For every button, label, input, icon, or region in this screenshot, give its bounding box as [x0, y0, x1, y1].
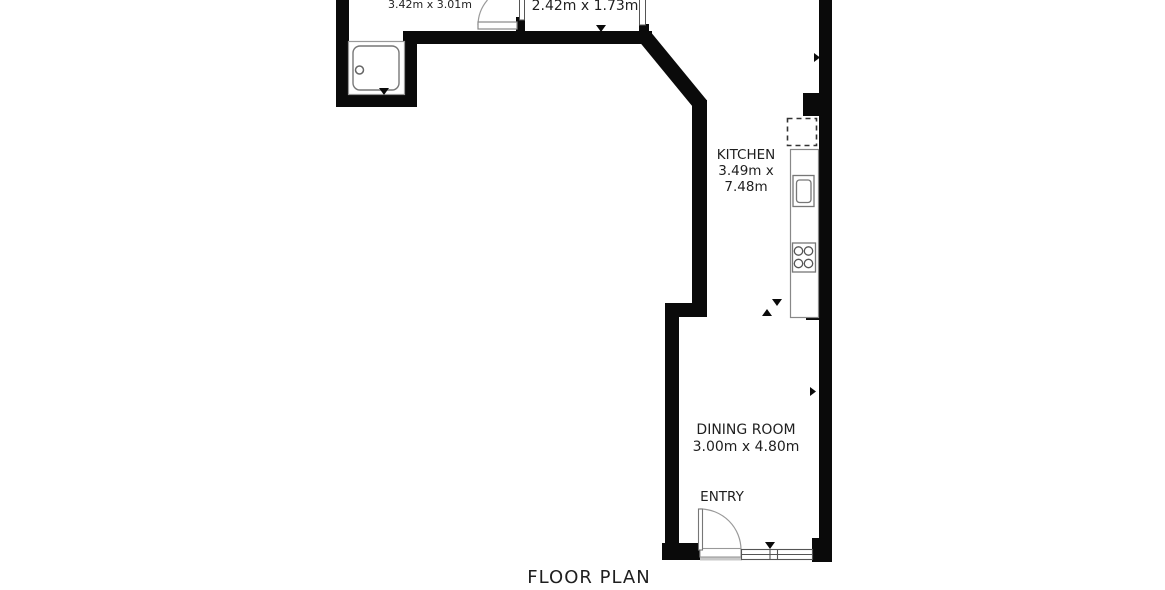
appliance-space-dashed-icon [788, 119, 817, 146]
kitchen-dim-line2: 7.48m [685, 179, 807, 195]
dimension-markers [379, 25, 820, 549]
wall-dining-bottom-left [662, 543, 700, 560]
marker-small-room-down [596, 25, 606, 32]
hob-burner-icon [794, 259, 802, 267]
dining-room-dimensions: 3.00m x 4.80m [671, 439, 821, 456]
wall-top-main [403, 31, 652, 44]
shower-drain-icon [356, 66, 364, 74]
kitchen-dim-line1: 3.49m x [685, 163, 807, 179]
marker-kitchen-bottom-down [772, 299, 782, 306]
dining-room-label: DINING ROOM 3.00m x 4.80m [671, 422, 821, 456]
wall-dining-bottom-right [812, 538, 832, 562]
wall-right [819, 0, 832, 562]
wall-door-pillar-left [516, 17, 525, 44]
marker-window-down [765, 542, 775, 549]
door-leaf-top [478, 22, 517, 29]
wall-pier-kitchen-top [803, 93, 819, 116]
marker-dining-top-up [762, 309, 772, 316]
page-title: FLOOR PLAN [489, 567, 689, 589]
door-arc-entry [700, 509, 741, 550]
hob-burner-icon [794, 247, 802, 255]
kitchen-label: KITCHEN 3.49m x 7.48m [685, 147, 807, 195]
floor-plan-page: 3.42m x 3.01m 2.42m x 1.73m KITCHEN 3.49… [0, 0, 1165, 590]
wall-bathroom-left [336, 0, 349, 107]
hob-burner-icon [804, 259, 812, 267]
entry-door-icon [699, 509, 743, 561]
marker-dining-right [810, 387, 816, 396]
dining-room-name: DINING ROOM [671, 422, 821, 439]
kitchen-name: KITCHEN [685, 147, 807, 163]
hob-burner-icon [804, 247, 812, 255]
entry-threshold [700, 549, 741, 558]
window-icon [742, 550, 813, 560]
bathroom-dimensions-label: 3.42m x 3.01m [350, 0, 510, 12]
wall-kitchen-left [692, 100, 707, 317]
door-leaf-entry [699, 509, 703, 550]
floor-plan-canvas [0, 0, 1165, 590]
entry-label: ENTRY [687, 489, 757, 505]
wall-diagonal [646, 38, 701, 105]
shower-tray-icon [349, 42, 405, 95]
walls [336, 0, 832, 562]
small-room-dimensions-label: 2.42m x 1.73m [515, 0, 655, 14]
